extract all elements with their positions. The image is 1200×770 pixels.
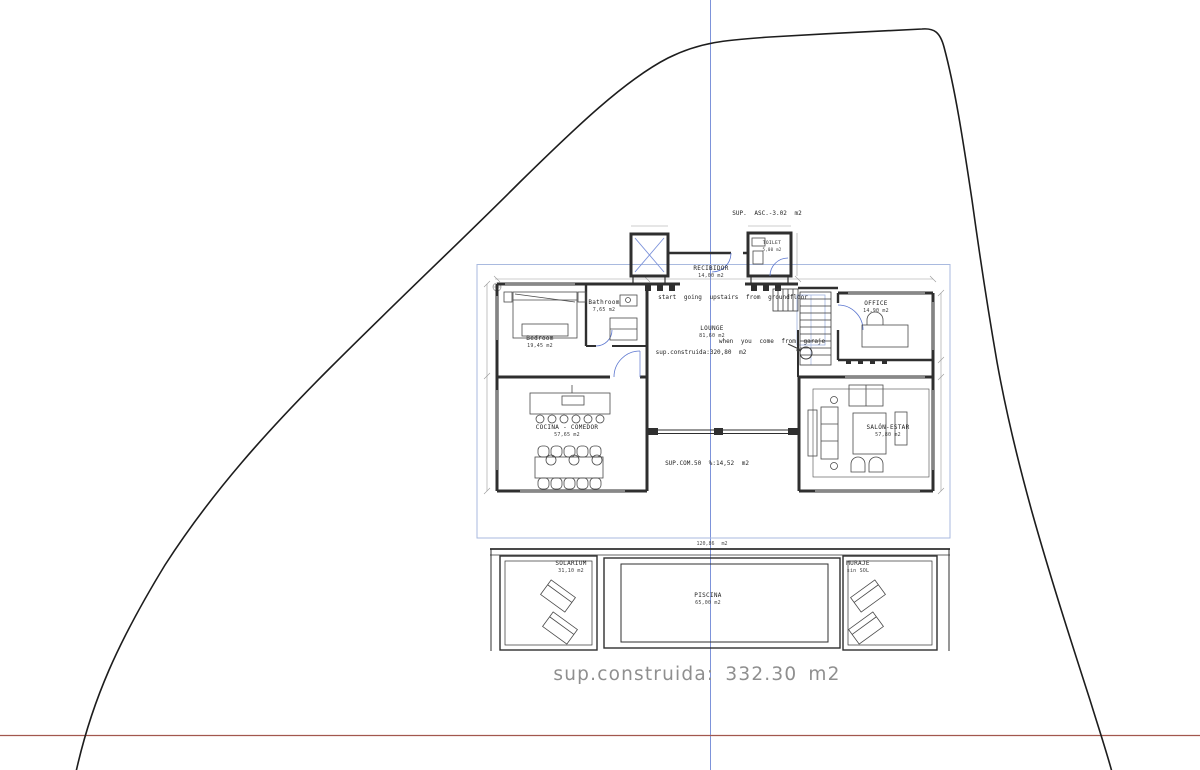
room-label-piscina: PISCINA 65,00 m2	[694, 592, 721, 606]
toilet-walls	[748, 233, 791, 276]
bedroom-furniture	[504, 292, 586, 338]
room-label-cocina-comedor: COCINA - COMEDOR 57,65 m2	[536, 424, 599, 438]
site-boundary	[76, 29, 1112, 770]
room-label-office: OFFICE 14,90 m2	[863, 300, 889, 314]
door-arc	[770, 258, 788, 276]
room-label-bedroom: Bedroom 19,45 m2	[526, 335, 553, 349]
pool-box	[604, 558, 840, 648]
room-label-salon-estar: SALÓN-ESTAR 57,80 m2	[866, 424, 909, 438]
room-label-muraje: MURAJE sin SOL	[846, 560, 869, 574]
room-label-solarium: SOLARIUM 31,10 m2	[555, 560, 586, 574]
nightstand	[504, 292, 512, 302]
stair-start-marker	[800, 347, 812, 359]
room-label-recibidor: RECIBIDOR 14,00 m2	[693, 265, 728, 279]
sup-asc-annotation: SUP. ASC.-3.02 m2	[732, 210, 801, 217]
garaje-note: when you come from garaje	[719, 338, 825, 345]
pool-water	[621, 564, 828, 642]
terrace-glass-line	[647, 428, 799, 435]
room-label-bathroom: Bathroom 7,65 m2	[588, 299, 619, 313]
floorplan-canvas: SUP. ASC.-3.02 m2 TOILET 5,00 m2 RECIBID…	[0, 0, 1200, 770]
office-furniture	[862, 312, 908, 347]
armchair	[851, 457, 865, 472]
sofa	[821, 407, 838, 459]
interior-area-annotation: sup.construida:320,80 m2	[656, 349, 747, 356]
terrace-dimension: 120,86 m2	[696, 541, 727, 547]
common-area-annotation: SUP.COM.50 %:14,52 m2	[665, 460, 749, 467]
toilet-wc	[753, 251, 763, 264]
bed	[513, 292, 577, 338]
armchair	[869, 457, 883, 472]
total-built-area: sup.construida: 332.30 m2	[553, 664, 840, 685]
sideboard	[808, 410, 817, 456]
drawing-layer	[0, 0, 1200, 770]
elevator-x-icon	[635, 238, 664, 272]
room-label-toilet: TOILET 5,00 m2	[762, 241, 781, 252]
desk	[862, 325, 908, 347]
upstairs-note: start going upstairs from groundfloor	[658, 294, 808, 301]
